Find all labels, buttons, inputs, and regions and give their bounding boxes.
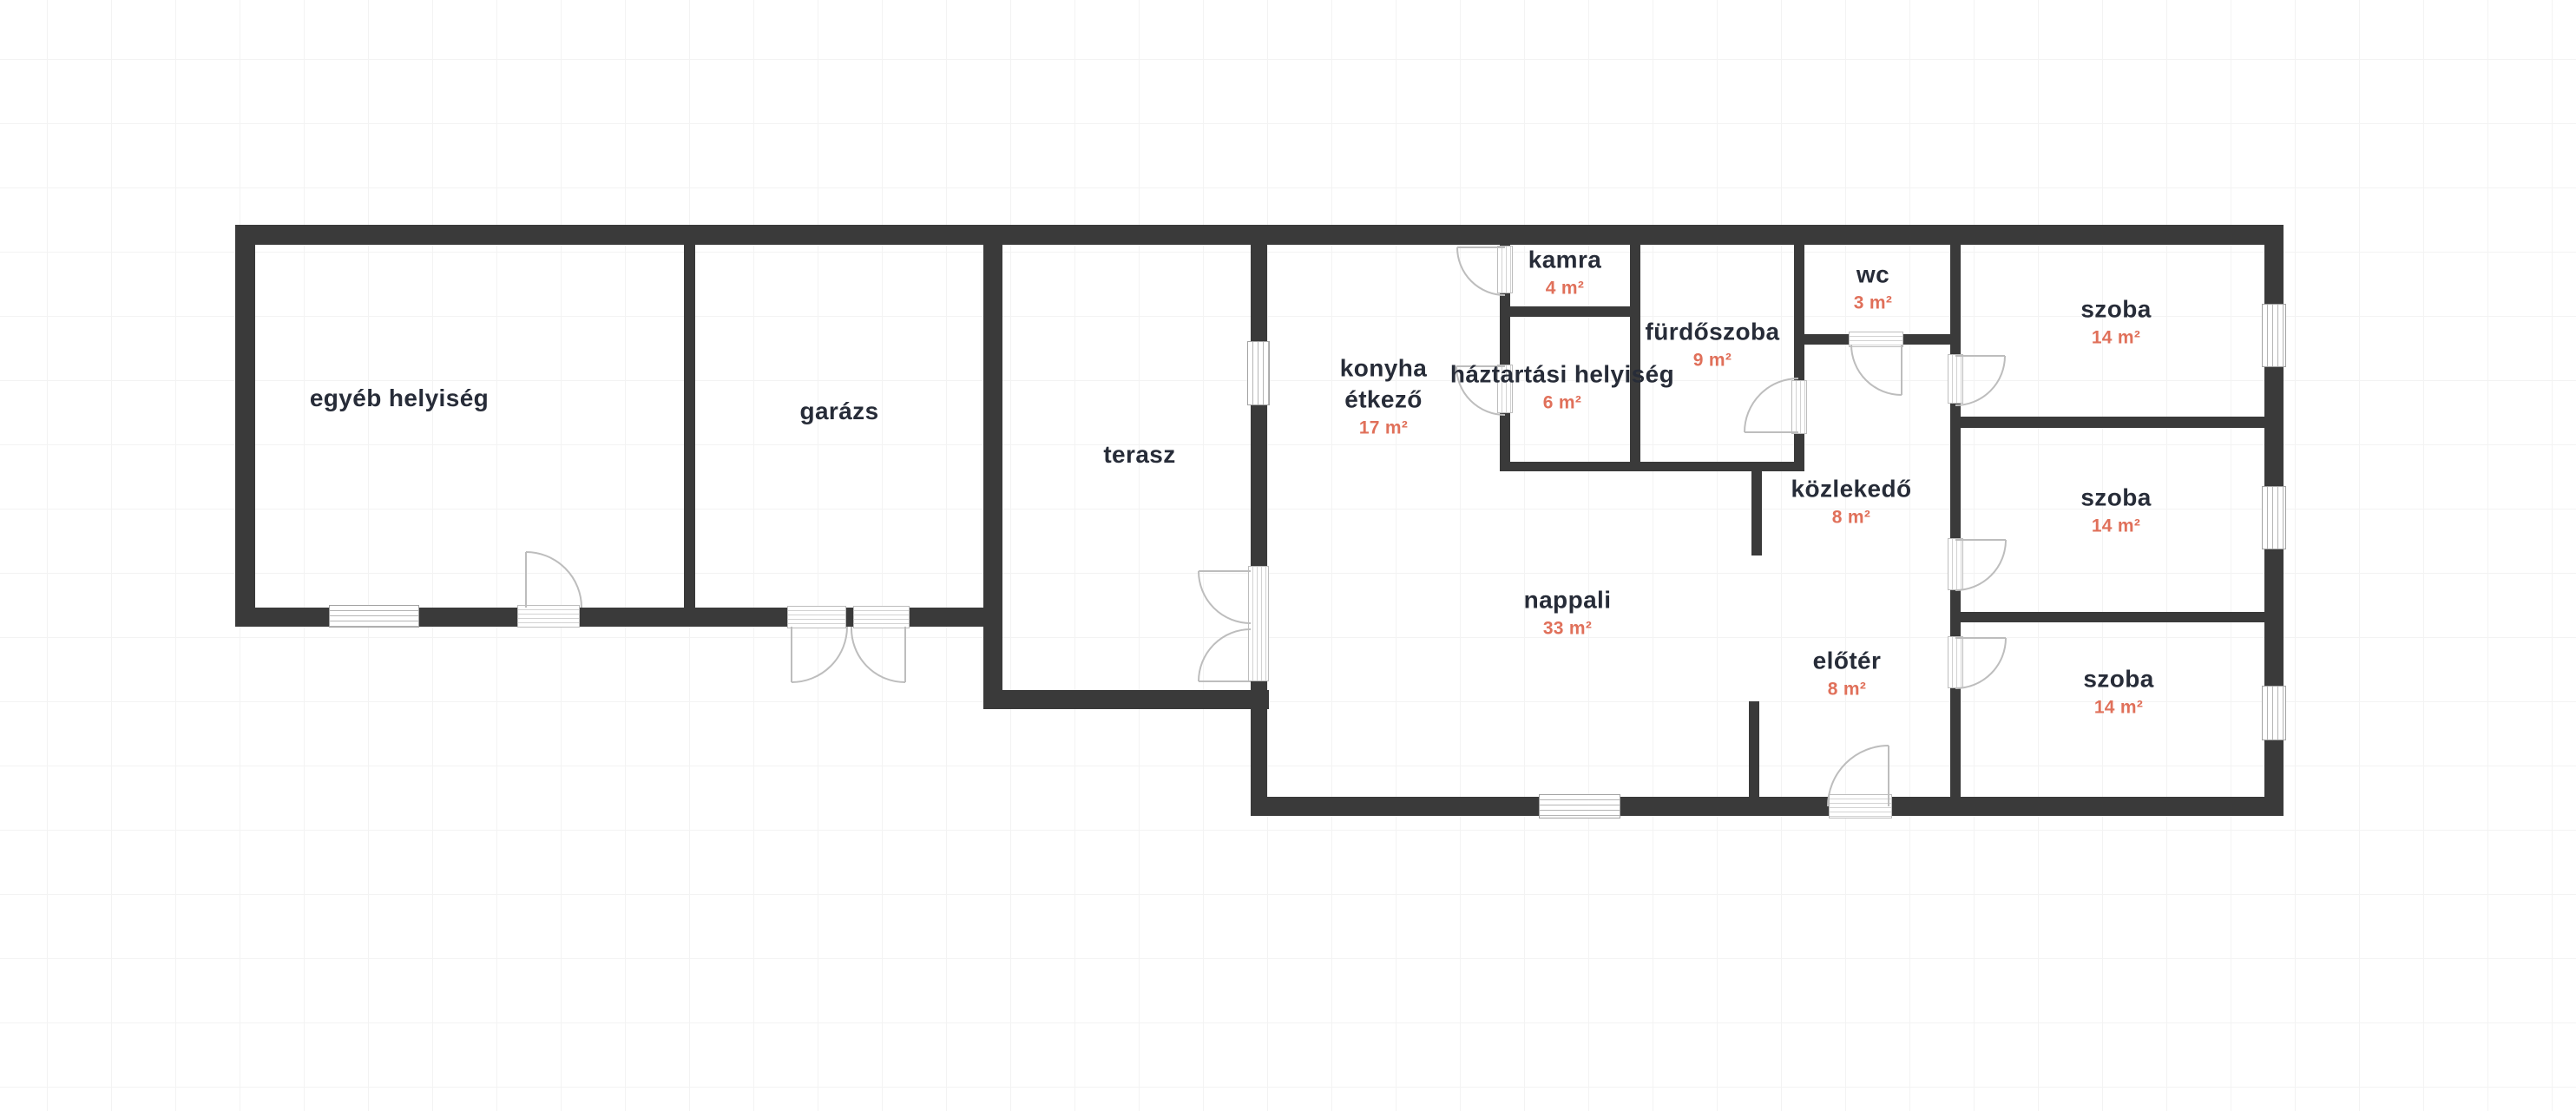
room-name: terasz bbox=[1103, 443, 1175, 467]
door-swings-layer bbox=[0, 0, 2576, 1111]
room-area: 14 m² bbox=[2094, 699, 2143, 717]
room-area: 6 m² bbox=[1543, 394, 1581, 412]
wall-segment bbox=[1630, 244, 1640, 471]
room-label-terasz: terasz bbox=[1103, 443, 1175, 467]
window-icon bbox=[1539, 794, 1620, 818]
room-name: konyha bbox=[1340, 357, 1427, 381]
room-label-furdoszoba: fürdőszoba 9 m² bbox=[1646, 320, 1780, 370]
wall-segment bbox=[1251, 797, 2284, 816]
room-label-kozlekedo: közlekedő 8 m² bbox=[1791, 477, 1912, 527]
window-icon bbox=[329, 605, 419, 628]
room-label-eloter: előtér 8 m² bbox=[1813, 649, 1882, 699]
wall-segment bbox=[1500, 462, 1804, 471]
room-name: közlekedő bbox=[1791, 477, 1912, 502]
wall-segment bbox=[1251, 244, 1267, 816]
room-name: szoba bbox=[2080, 486, 2151, 510]
room-area: 17 m² bbox=[1359, 419, 1408, 437]
wall-segment bbox=[1751, 471, 1762, 555]
door-swing-icon bbox=[792, 627, 847, 682]
room-area: 8 m² bbox=[1828, 680, 1866, 699]
door-threshold-icon bbox=[1829, 794, 1892, 818]
window-icon bbox=[2262, 486, 2286, 549]
room-area: 14 m² bbox=[2092, 517, 2140, 536]
room-label-haztartasi-helyiseg: háztartási helyiség 6 m² bbox=[1450, 363, 1674, 412]
wall-segment bbox=[1961, 417, 2264, 428]
window-icon bbox=[1247, 341, 1270, 405]
door-threshold-icon bbox=[1948, 354, 1963, 404]
door-threshold-icon bbox=[1849, 332, 1903, 347]
wall-segment bbox=[1510, 306, 1630, 317]
door-swing-icon bbox=[1745, 378, 1798, 432]
door-threshold-icon bbox=[1248, 566, 1269, 681]
room-name: egyéb helyiség bbox=[310, 386, 489, 411]
wall-segment bbox=[235, 225, 255, 627]
wall-segment bbox=[983, 244, 1002, 709]
room-label-szoba-3: szoba 14 m² bbox=[2083, 667, 2153, 717]
room-name: előtér bbox=[1813, 649, 1882, 674]
room-area: 14 m² bbox=[2092, 329, 2140, 347]
door-threshold-icon bbox=[1791, 380, 1807, 434]
room-label-szoba-1: szoba 14 m² bbox=[2080, 298, 2151, 347]
room-label-nappali: nappali 33 m² bbox=[1524, 588, 1612, 638]
door-threshold-icon bbox=[853, 606, 910, 628]
room-label-wc: wc 3 m² bbox=[1854, 263, 1892, 312]
wall-segment bbox=[684, 244, 695, 608]
room-name: szoba bbox=[2083, 667, 2153, 692]
room-name: nappali bbox=[1524, 588, 1612, 613]
door-threshold-icon bbox=[1948, 538, 1963, 590]
floor-plan-canvas: egyéb helyiség garázs terasz konyha étke… bbox=[0, 0, 2576, 1111]
wall-segment bbox=[1749, 701, 1759, 797]
door-threshold-icon bbox=[1497, 246, 1513, 293]
door-threshold-icon bbox=[787, 606, 846, 628]
wall-segment bbox=[1961, 612, 2264, 622]
room-label-konyha-etkezo: konyha étkező 17 m² bbox=[1340, 357, 1427, 437]
room-name: garázs bbox=[799, 399, 878, 424]
room-label-garazs: garázs bbox=[799, 399, 878, 424]
room-area: 8 m² bbox=[1832, 509, 1870, 527]
room-label-egyeb-helyiseg: egyéb helyiség bbox=[310, 386, 489, 411]
room-area: 3 m² bbox=[1854, 294, 1892, 312]
window-icon bbox=[2262, 686, 2286, 740]
room-name: háztartási helyiség bbox=[1450, 363, 1674, 387]
door-swing-icon bbox=[1199, 571, 1251, 623]
door-threshold-icon bbox=[1948, 636, 1963, 688]
room-subname: étkező bbox=[1344, 388, 1423, 412]
door-threshold-icon bbox=[517, 605, 580, 628]
room-area: 9 m² bbox=[1693, 352, 1732, 370]
door-swing-icon bbox=[1199, 629, 1251, 681]
room-label-szoba-2: szoba 14 m² bbox=[2080, 486, 2151, 536]
room-name: kamra bbox=[1528, 248, 1602, 273]
door-swing-icon bbox=[526, 552, 582, 608]
room-label-kamra: kamra 4 m² bbox=[1528, 248, 1602, 298]
wall-segment bbox=[235, 225, 2284, 245]
door-swing-icon bbox=[1851, 345, 1902, 395]
wall-segment bbox=[983, 690, 1269, 709]
door-swing-icon bbox=[851, 627, 905, 682]
room-area: 33 m² bbox=[1543, 620, 1592, 638]
window-icon bbox=[2262, 304, 2286, 367]
wall-segment bbox=[1950, 244, 1961, 797]
room-name: szoba bbox=[2080, 298, 2151, 322]
room-area: 4 m² bbox=[1546, 279, 1584, 298]
room-name: wc bbox=[1856, 263, 1889, 287]
room-name: fürdőszoba bbox=[1646, 320, 1780, 345]
